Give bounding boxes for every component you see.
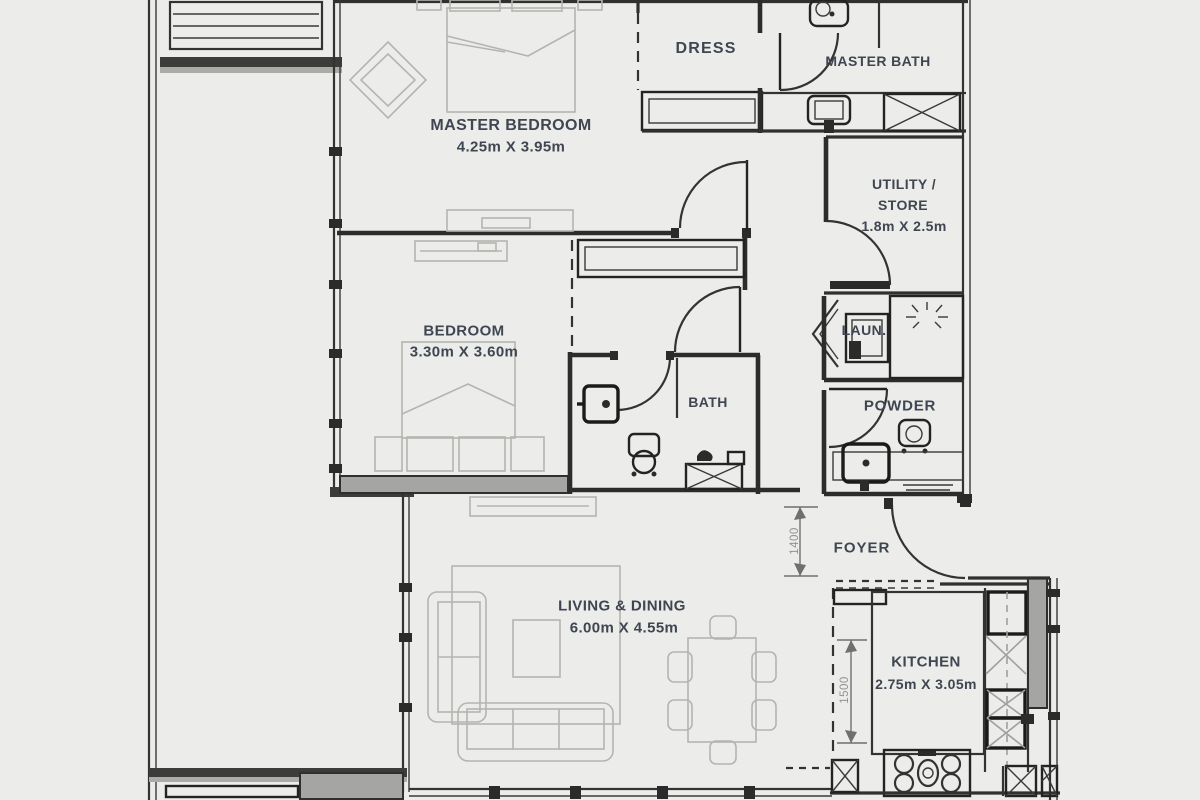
column	[300, 773, 403, 799]
sink-icon	[577, 386, 618, 422]
shaft-icon	[832, 760, 858, 792]
room-label-foyer: FOYER	[834, 540, 891, 557]
dimension-text-foyer: 1400	[789, 527, 801, 555]
room-label-dress: DRESS	[675, 40, 736, 58]
floor-drain-icon	[686, 450, 744, 489]
room-label-master-bath: MASTER BATH	[825, 53, 930, 69]
rug-icon	[452, 566, 620, 724]
room-label-utility-line2: STORE	[878, 197, 928, 213]
room-label-bath: BATH	[688, 394, 727, 410]
room-label-utility-line1: UTILITY /	[872, 176, 936, 192]
counter-icon	[985, 578, 1034, 772]
dress-room	[638, 0, 762, 130]
bath	[568, 351, 800, 494]
hall-wardrobe-icon	[578, 240, 744, 277]
bedroom	[340, 240, 572, 494]
column	[1028, 578, 1047, 708]
room-label-powder: POWDER	[864, 398, 936, 415]
rug-icon	[350, 42, 426, 118]
tv-unit-icon	[415, 241, 507, 261]
toilet-icon	[808, 96, 850, 133]
louver-unit-icon	[170, 2, 322, 49]
laundry	[813, 296, 963, 380]
sink-icon	[810, 0, 848, 26]
room-label-kitchen: KITCHEN	[891, 654, 960, 671]
dresser-icon	[447, 210, 573, 231]
vanity-sink-icon	[833, 444, 963, 491]
dining-table-icon	[668, 616, 776, 764]
room-label-laundry: LAUN.	[842, 322, 887, 338]
room-dims-kitchen: 2.75m X 3.05m	[875, 676, 977, 692]
console-icon	[470, 497, 596, 516]
room-dims-master-bedroom: 4.25m X 3.95m	[457, 139, 566, 156]
living-dining	[409, 497, 832, 799]
door-mat-icon	[903, 485, 953, 490]
utility-store	[824, 137, 963, 293]
lightwell-icon	[890, 296, 963, 378]
bedroom-wardrobe	[340, 476, 568, 493]
closet-icon	[642, 92, 762, 130]
bed-icon	[447, 0, 575, 112]
room-label-bedroom: BEDROOM	[423, 323, 504, 340]
room-dims-bedroom: 3.30m X 3.60m	[410, 344, 519, 361]
coffee-table-icon	[513, 620, 560, 677]
room-dims-living-dining: 6.00m X 4.55m	[570, 620, 679, 637]
shaft-icon	[884, 94, 960, 131]
room-dims-utility: 1.8m X 2.5m	[861, 218, 946, 234]
door-master-bedroom	[680, 160, 747, 230]
bed-icon	[375, 342, 544, 471]
door-bedroom-hall	[675, 287, 740, 352]
stove-icon	[884, 750, 970, 796]
room-label-living-dining: LIVING & DINING	[558, 598, 686, 615]
balcony	[149, 0, 414, 799]
dimension-text-kitchen: 1500	[839, 676, 851, 704]
entry-door	[884, 496, 971, 578]
toilet-icon	[899, 420, 930, 454]
floor-plan-drawing	[0, 0, 1200, 800]
foyer	[784, 496, 971, 578]
floor-plan: MASTER BEDROOM 4.25m X 3.95m DRESS MASTE…	[0, 0, 1200, 800]
hallway	[578, 233, 745, 352]
sofa-icon	[458, 703, 613, 761]
toilet-icon	[629, 434, 659, 477]
room-label-master-bedroom: MASTER BEDROOM	[430, 117, 591, 135]
faucet-icon	[697, 450, 713, 461]
